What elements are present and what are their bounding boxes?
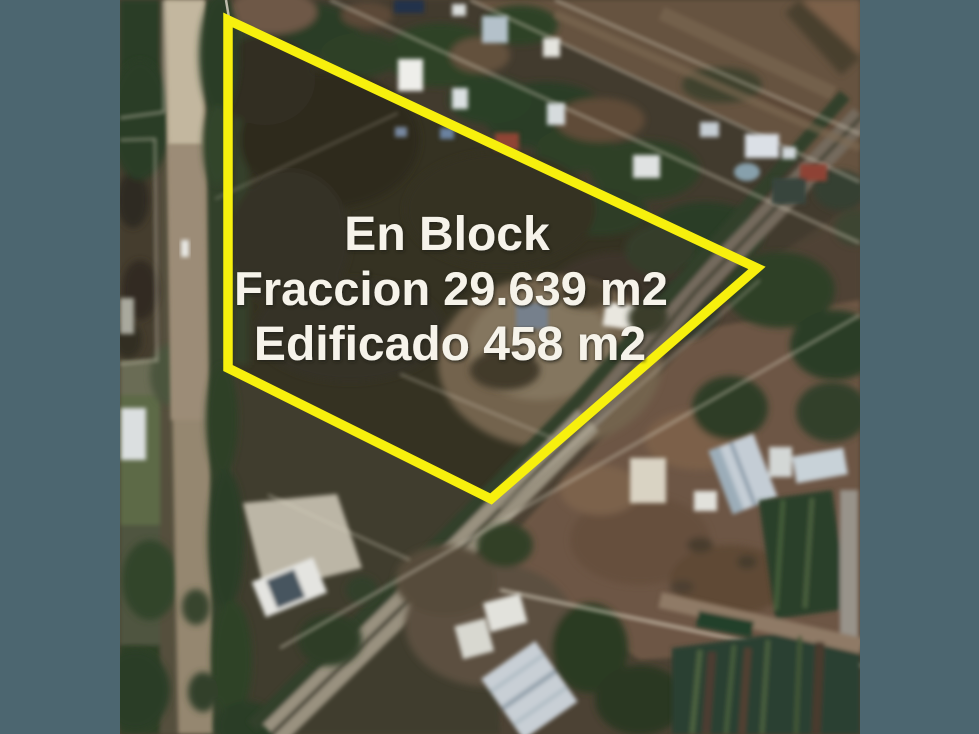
svg-text:En Block: En Block [344, 208, 550, 261]
svg-text:Edificado 458 m2: Edificado 458 m2 [254, 318, 646, 371]
svg-text:Fraccion 29.639 m2: Fraccion 29.639 m2 [234, 262, 668, 315]
